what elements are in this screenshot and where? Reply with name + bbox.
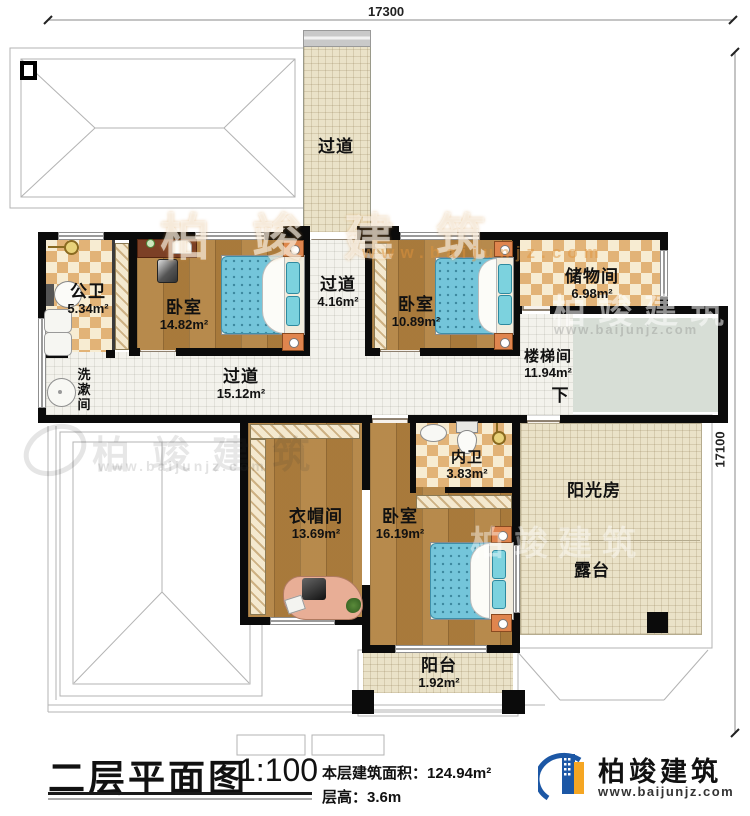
label-stairwell: 楼梯间 11.94m² xyxy=(516,349,580,380)
window-bedroom3-bottom xyxy=(395,645,487,653)
inner-bath-sink xyxy=(420,424,447,442)
wall xyxy=(660,297,668,314)
title-underline-thin xyxy=(48,798,312,800)
window-bedroom1-top xyxy=(195,232,265,240)
bedroom1-sheet xyxy=(262,256,285,334)
wall xyxy=(362,585,370,617)
bedroom1-desk-lamp xyxy=(172,240,192,254)
wall xyxy=(38,232,46,318)
label-inner-bath: 内卫 3.83m² xyxy=(438,450,496,481)
wall xyxy=(445,487,520,493)
wall xyxy=(480,232,668,240)
right-dimension-line xyxy=(731,48,739,737)
label-stair-down: 下 xyxy=(548,387,572,406)
shower-tray-2 xyxy=(44,332,72,356)
label-cloakroom: 衣帽间 13.69m² xyxy=(276,508,356,541)
wall xyxy=(129,240,137,348)
bedroom3-nightstand-1 xyxy=(491,526,512,543)
wall xyxy=(550,306,728,314)
inner-bath-shower-head xyxy=(492,431,506,445)
balcony-column-right xyxy=(502,690,525,714)
plan-scale: 1:100 xyxy=(238,752,318,789)
wall xyxy=(129,348,140,356)
toilet-tank xyxy=(46,284,54,306)
washroom-sink-drain xyxy=(58,390,62,394)
label-sunroom: 阳光房 xyxy=(556,482,632,501)
wall xyxy=(410,487,416,493)
floor-area-value: 124.94m² xyxy=(427,765,491,782)
window-bedroom2-top xyxy=(400,232,480,240)
bedroom3-pillow-1 xyxy=(492,550,506,579)
sunroom-terrace-divider xyxy=(520,540,700,541)
wall xyxy=(718,306,728,423)
wall xyxy=(365,348,380,356)
bedroom1-nightstand-2 xyxy=(282,333,304,351)
label-corridor-mid: 过道 4.16m² xyxy=(308,276,368,309)
floor-height-label: 层高： xyxy=(322,789,367,806)
label-bedroom2: 卧室 10.89m² xyxy=(382,296,450,329)
corridor-top-cap xyxy=(303,30,371,47)
wall xyxy=(560,415,728,423)
bedroom3-nightstand-2 xyxy=(491,614,512,632)
bedroom2-nightstand-1 xyxy=(494,241,513,257)
wall xyxy=(38,415,372,423)
floor-height-line: 层高：3.6m xyxy=(322,786,401,807)
stairwell-stairs xyxy=(573,318,718,412)
cloakroom-closet-left xyxy=(250,439,266,615)
balcony-column-left xyxy=(352,690,374,714)
inner-bath-shower-cord xyxy=(496,423,498,433)
window-public-bath-top xyxy=(58,232,104,240)
cloakroom-monitor xyxy=(302,578,326,600)
wall xyxy=(660,232,668,250)
bedroom3-pillow-2 xyxy=(492,580,506,609)
label-public-bath: 公卫 5.34m² xyxy=(58,283,118,316)
terrace-column xyxy=(647,612,668,633)
label-bedroom1: 卧室 14.82m² xyxy=(144,299,224,332)
wall xyxy=(106,350,115,358)
floor-area-line: 本层建筑面积：124.94m² xyxy=(322,762,491,783)
wall xyxy=(362,423,370,490)
label-washroom: 洗漱间 xyxy=(76,368,92,413)
bedroom3-sheet xyxy=(470,543,490,619)
sunroom-terrace-floor xyxy=(520,423,702,635)
wall xyxy=(362,645,395,653)
wall xyxy=(283,226,310,234)
bedroom3-closet xyxy=(416,495,512,509)
chimney xyxy=(22,63,35,78)
wall xyxy=(512,423,520,545)
floor-plan-canvas: 柏竣建筑 www.baijunjz.com 柏竣建筑 www.baijunjz.… xyxy=(0,0,750,816)
bedroom2-sheet xyxy=(478,258,497,334)
logo-url: www.baijunjz.com xyxy=(598,784,734,799)
label-terrace: 露台 xyxy=(564,562,620,581)
bedroom1-pillow-1 xyxy=(286,262,300,294)
bedroom2-pillow-2 xyxy=(498,295,512,325)
cloakroom-closet-top xyxy=(250,424,360,439)
window-storage-right xyxy=(660,250,668,297)
bedroom1-wall-dot xyxy=(146,239,155,248)
label-storage: 储物间 6.98m² xyxy=(550,268,634,301)
bedroom2-pillow-1 xyxy=(498,264,512,294)
shower-head xyxy=(64,240,79,255)
bedroom1-tv xyxy=(157,259,178,283)
title-underline-thick xyxy=(48,792,312,795)
dimension-top-value: 17300 xyxy=(368,4,404,19)
wall xyxy=(357,232,400,240)
bedroom1-nightstand-1 xyxy=(283,240,304,257)
bedroom2-nightstand-2 xyxy=(494,333,513,350)
label-corridor-main: 过道 15.12m² xyxy=(196,368,286,401)
dimension-right-value: 17100 xyxy=(713,431,728,467)
wall xyxy=(240,617,270,625)
bedroom1-pillow-2 xyxy=(286,296,300,326)
wall xyxy=(240,415,248,625)
floor-area-label: 本层建筑面积： xyxy=(322,765,427,782)
label-balcony: 阳台 1.92m² xyxy=(406,657,472,690)
floor-height-value: 3.6m xyxy=(367,789,401,806)
logo-icon xyxy=(538,746,594,804)
wall xyxy=(410,423,416,487)
label-corridor-top: 过道 xyxy=(306,138,366,157)
roof-top-left xyxy=(10,48,306,208)
label-bedroom3: 卧室 16.19m² xyxy=(366,508,434,541)
